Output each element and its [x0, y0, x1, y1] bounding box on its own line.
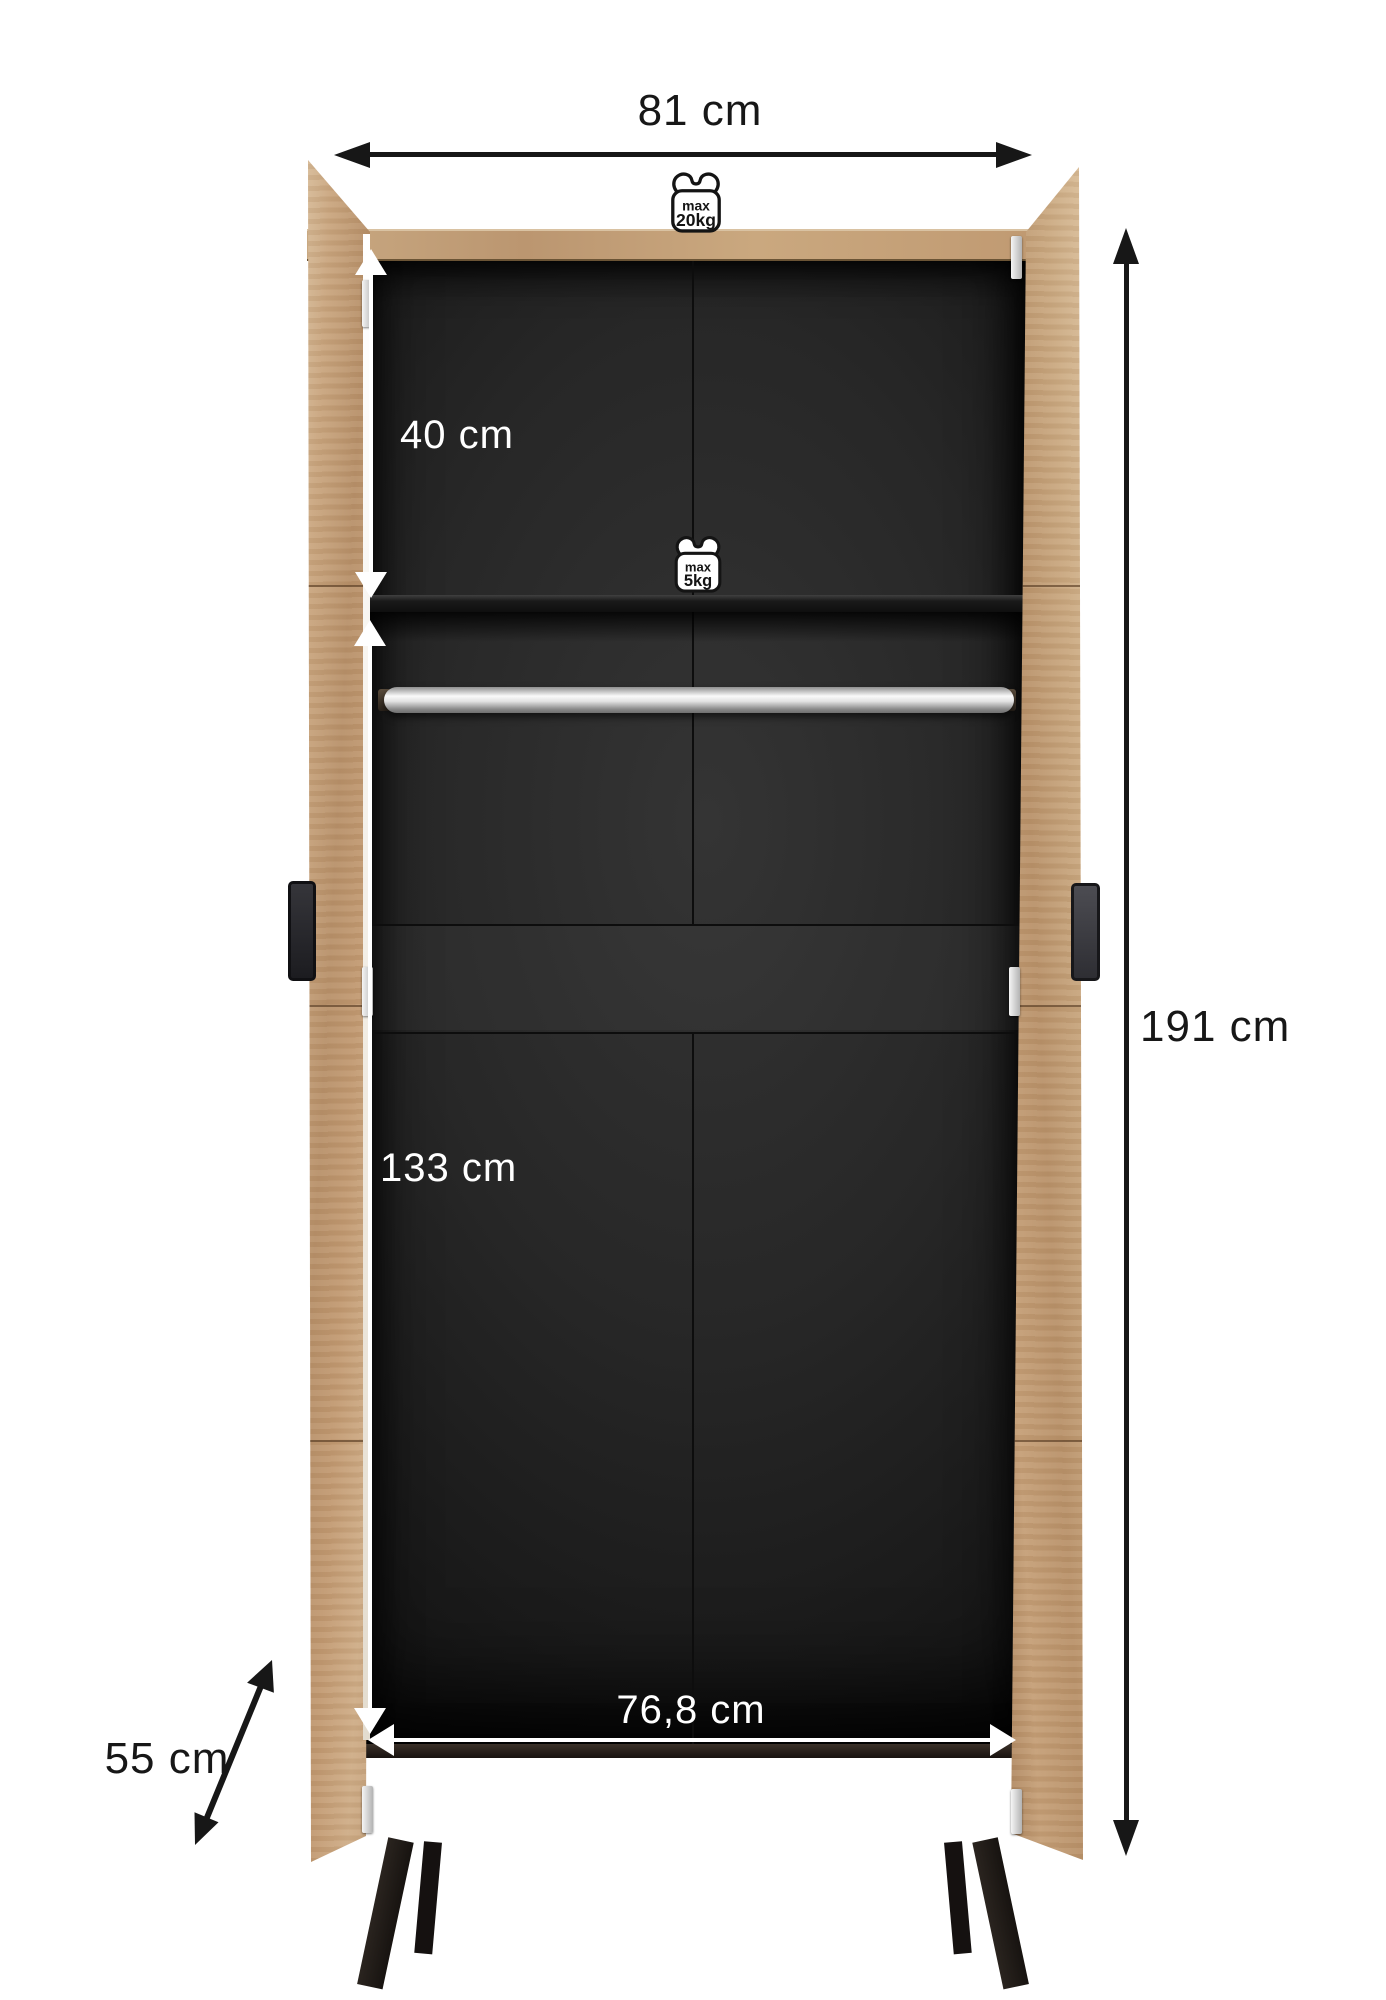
dimension-arrowhead-down [355, 572, 387, 598]
right-door-handle [1071, 883, 1100, 981]
wardrobe-front-left-leg [357, 1837, 414, 1989]
dimension-line-40cm [369, 262, 373, 578]
hinge [1009, 967, 1020, 1016]
max-load-5kg-icon: max 5kg [666, 531, 730, 593]
shelf-shadow [358, 612, 1030, 642]
clothes-rail [384, 687, 1014, 713]
wardrobe-back-right-leg [944, 1841, 972, 1954]
svg-text:5kg: 5kg [684, 572, 712, 590]
door-panel-seam [1008, 1005, 1088, 1007]
svg-text:20kg: 20kg [676, 210, 716, 230]
hinge [362, 1786, 373, 1833]
wardrobe-top-board [307, 229, 1033, 261]
dimension-label-width: 81 cm [480, 86, 920, 136]
wardrobe-bottom-board-edge [358, 1744, 1030, 1758]
left-door-handle [288, 881, 316, 981]
dimension-arrowhead-left [334, 142, 370, 168]
dimension-arrowhead-up [1113, 228, 1139, 264]
wardrobe-interior [358, 255, 1030, 1745]
dimension-label-upper-section: 40 cm [400, 413, 514, 458]
wardrobe-front-right-leg [972, 1837, 1029, 1989]
hinge [1011, 236, 1022, 279]
dimension-label-depth: 55 cm [93, 1734, 241, 1784]
wardrobe-shelf [358, 595, 1030, 612]
wardrobe-dimension-diagram: 40 cm 133 cm 76,8 cm 81 cm 191 cm 55 cm … [0, 0, 1386, 2000]
max-load-20kg-icon: max 20kg [662, 167, 730, 233]
dimension-label-height: 191 cm [1140, 1002, 1290, 1052]
dimension-line-133cm [368, 644, 372, 1710]
dimension-line-76-8cm [390, 1738, 994, 1742]
dimension-label-inner-width: 76,8 cm [556, 1688, 826, 1733]
dimension-arrowhead-right [996, 142, 1032, 168]
dimension-line-191cm [1124, 260, 1129, 1822]
back-panel-seam [692, 1032, 694, 1745]
door-panel-seam [1008, 1440, 1088, 1442]
back-panel-middle-board [358, 926, 1030, 1030]
wardrobe-back-left-leg [414, 1841, 442, 1954]
dimension-line-81cm [366, 152, 1002, 157]
back-panel-seam [692, 612, 694, 926]
dimension-arrowhead-down [1113, 1820, 1139, 1856]
dimension-label-lower-section: 133 cm [380, 1146, 517, 1191]
dimension-arrowhead-right [990, 1724, 1016, 1756]
dimension-arrowhead-up [354, 620, 386, 646]
back-panel-seam [358, 924, 1030, 926]
back-panel-seam [358, 1032, 1030, 1034]
hinge [1011, 1789, 1022, 1834]
